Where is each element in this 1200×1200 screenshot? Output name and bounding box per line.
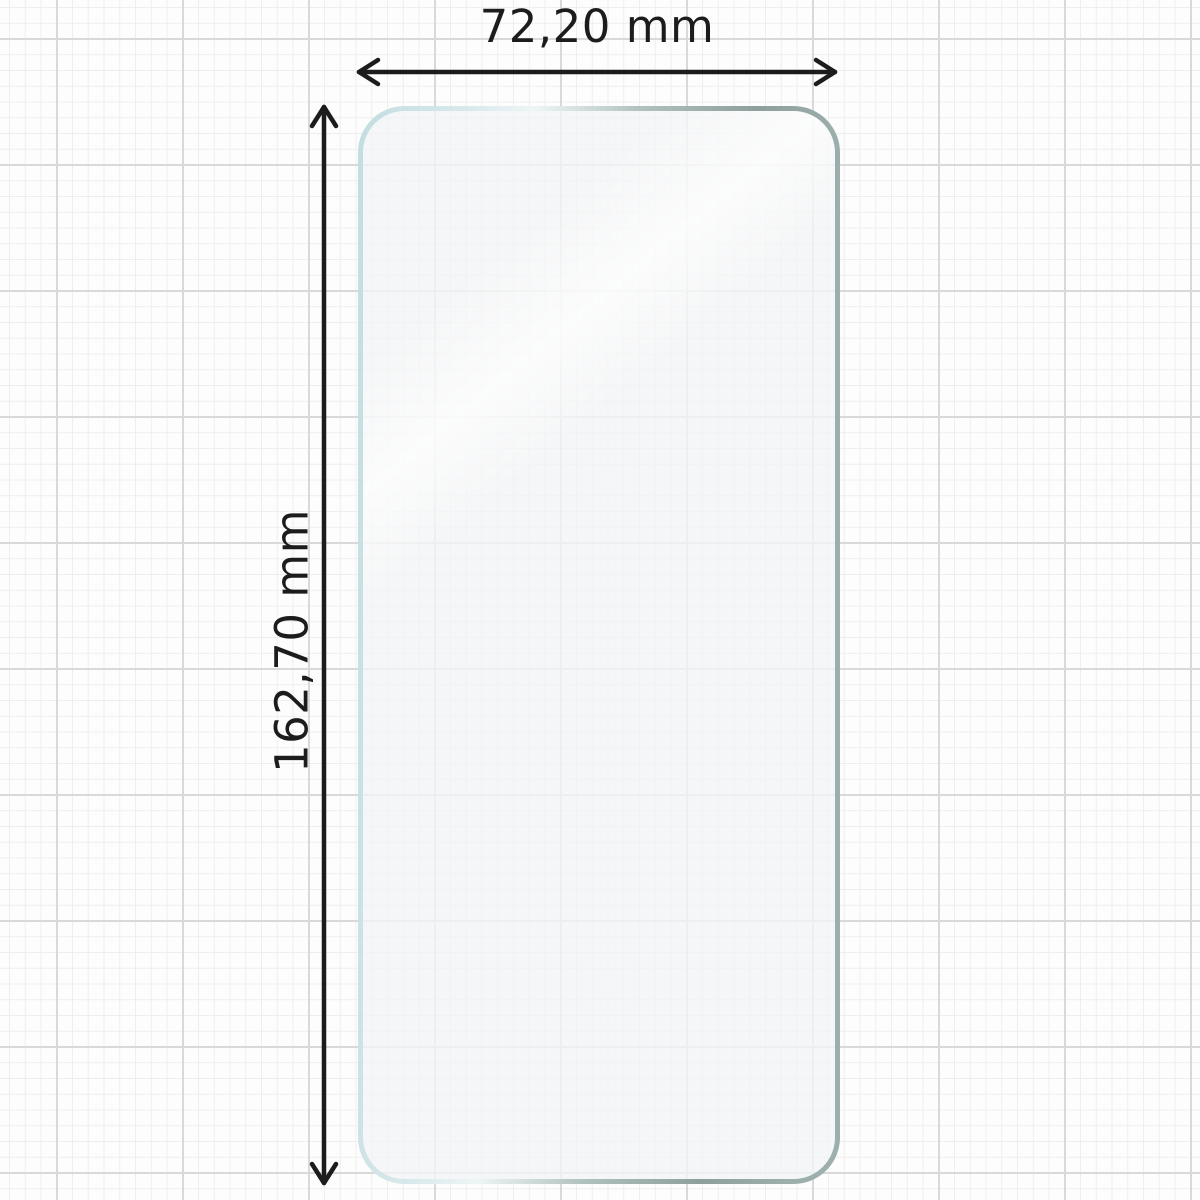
screen-protector — [358, 106, 840, 1184]
glass-reflection — [363, 111, 835, 671]
height-dimension-label: 162,70 mm — [266, 509, 319, 773]
graph-paper-background: 72,20 mm 162,70 mm — [0, 0, 1200, 1200]
width-dimension-arrow — [354, 54, 840, 90]
width-dimension-label: 72,20 mm — [354, 0, 840, 53]
